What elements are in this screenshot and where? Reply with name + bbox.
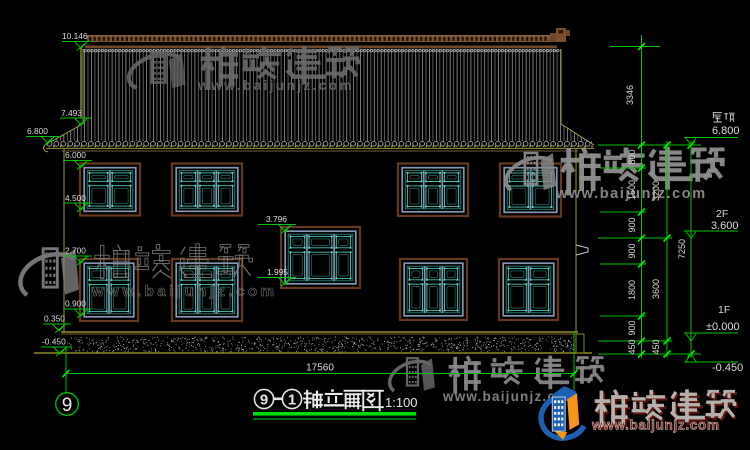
svg-text:2F: 2F — [716, 208, 728, 220]
svg-text:±0.000: ±0.000 — [706, 321, 740, 333]
svg-text:6.800: 6.800 — [712, 125, 740, 137]
svg-text:7.493: 7.493 — [61, 108, 82, 118]
svg-text:www.baijunjz.com: www.baijunjz.com — [91, 283, 277, 300]
svg-text:7250: 7250 — [677, 239, 687, 259]
svg-text:3600: 3600 — [651, 279, 661, 299]
svg-text:6.800: 6.800 — [27, 126, 48, 136]
svg-text:1500: 1500 — [627, 180, 637, 200]
svg-text:800: 800 — [627, 149, 637, 164]
svg-text:1F: 1F — [718, 304, 730, 316]
svg-text:6.000: 6.000 — [65, 150, 86, 160]
svg-text:9: 9 — [260, 392, 268, 409]
svg-text:3346: 3346 — [625, 85, 635, 105]
svg-text:1.995: 1.995 — [267, 267, 288, 277]
svg-text:900: 900 — [627, 320, 637, 335]
svg-text:900: 900 — [627, 217, 637, 232]
svg-text:2.700: 2.700 — [65, 246, 86, 256]
svg-text:1800: 1800 — [627, 280, 637, 300]
svg-text:450: 450 — [651, 339, 661, 354]
svg-text:-0.450: -0.450 — [712, 362, 743, 374]
svg-text:9: 9 — [62, 395, 73, 416]
svg-text:0.350: 0.350 — [44, 314, 65, 324]
svg-text:4.500: 4.500 — [65, 193, 86, 203]
svg-text:900: 900 — [627, 243, 637, 258]
svg-text:0.900: 0.900 — [65, 299, 86, 309]
svg-text:www.baijunjz.com: www.baijunjz.com — [197, 77, 354, 93]
svg-text:10.146: 10.146 — [62, 31, 88, 41]
svg-text:3.796: 3.796 — [266, 214, 287, 224]
svg-text:-0.450: -0.450 — [42, 337, 66, 347]
svg-text:www.baijunjz.com: www.baijunjz.com — [591, 418, 720, 433]
svg-text:1:100: 1:100 — [385, 395, 418, 410]
svg-text:17560: 17560 — [306, 363, 334, 374]
svg-text:450: 450 — [627, 339, 637, 354]
svg-text:3200: 3200 — [651, 181, 661, 201]
svg-text:3.600: 3.600 — [711, 220, 739, 232]
svg-text:1: 1 — [288, 392, 296, 409]
